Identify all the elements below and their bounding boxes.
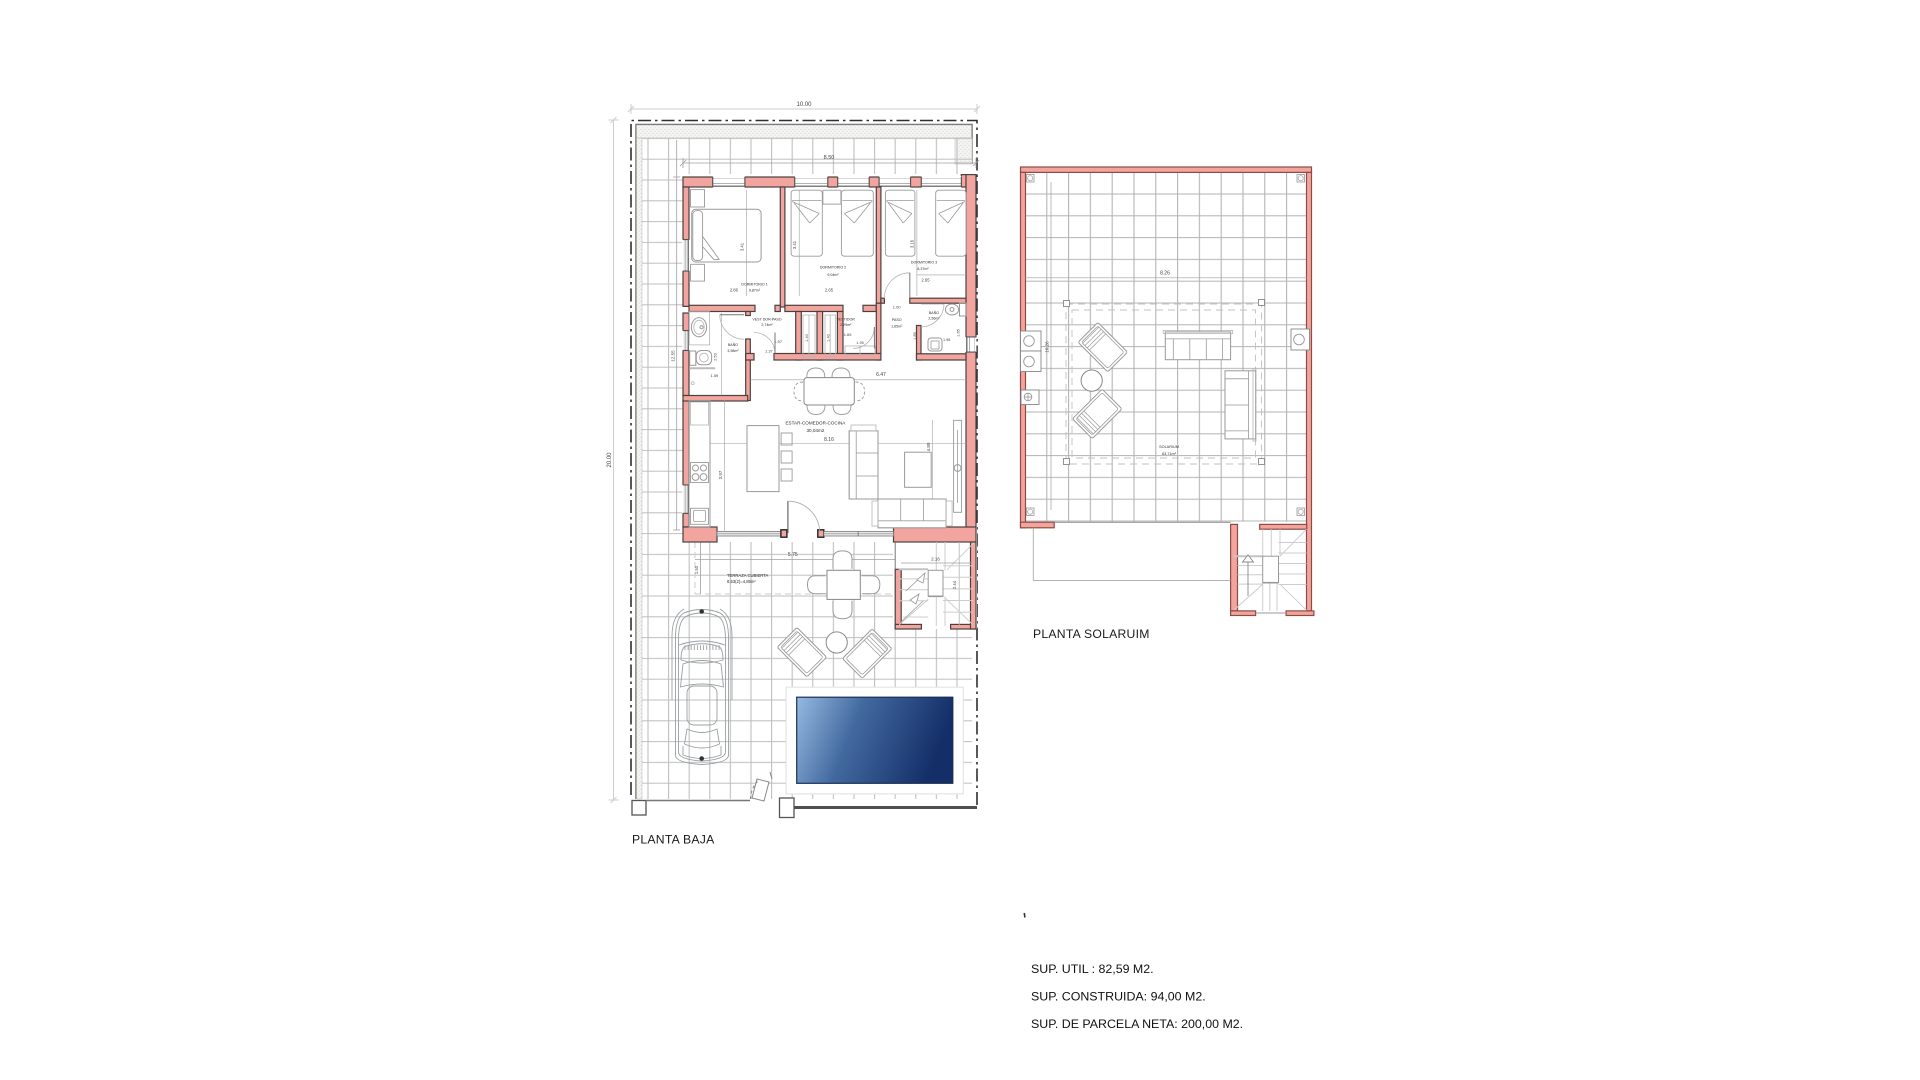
svg-text:2.44: 2.44 — [952, 580, 957, 589]
svg-text:1.37: 1.37 — [765, 349, 774, 354]
svg-text:TERRAZA CUBIERTA: TERRAZA CUBIERTA — [727, 573, 768, 578]
svg-text:2.50: 2.50 — [713, 352, 718, 361]
svg-text:BAÑO: BAÑO — [728, 342, 738, 347]
svg-text:PASO: PASO — [892, 318, 902, 322]
svg-text:1.40: 1.40 — [827, 334, 831, 341]
svg-text:DORMITORIO 1: DORMITORIO 1 — [741, 283, 767, 287]
svg-text:2.65: 2.65 — [825, 288, 834, 293]
svg-text:30,04m2: 30,04m2 — [806, 428, 824, 433]
svg-text:8,37m²: 8,37m² — [917, 267, 929, 271]
svg-text:SUP. DE PARCELA NETA: 200,00 M: SUP. DE PARCELA NETA: 200,00 M2. — [1031, 1017, 1243, 1031]
svg-text:VEST DOR-PASO: VEST DOR-PASO — [752, 318, 781, 322]
svg-text:1.00: 1.00 — [893, 305, 902, 310]
svg-text:8.50: 8.50 — [824, 155, 835, 161]
svg-text:SUP. UTIL : 82,59 M2.: SUP. UTIL : 82,59 M2. — [1031, 962, 1154, 976]
svg-text:10.26: 10.26 — [1045, 341, 1050, 353]
svg-text:1.98: 1.98 — [943, 338, 950, 342]
svg-text:8.26: 8.26 — [1160, 271, 1170, 277]
svg-text:1.40: 1.40 — [805, 334, 809, 341]
svg-text:3.97: 3.97 — [718, 470, 723, 479]
svg-text:4.80: 4.80 — [926, 442, 931, 451]
svg-text:PLANTA BAJA: PLANTA BAJA — [632, 833, 715, 847]
svg-text:63,71m²: 63,71m² — [1162, 452, 1177, 456]
svg-text:3.41: 3.41 — [792, 240, 797, 249]
svg-text:PLANTA SOLARUIM: PLANTA SOLARUIM — [1033, 627, 1150, 641]
svg-text:5.75: 5.75 — [788, 552, 798, 558]
svg-text:20.00: 20.00 — [607, 452, 613, 468]
svg-text:2,56m²: 2,56m² — [928, 317, 940, 321]
svg-text:1.85: 1.85 — [913, 332, 917, 339]
svg-text:2.16: 2.16 — [931, 557, 940, 562]
svg-text:DORMITORIO 2: DORMITORIO 2 — [820, 266, 846, 270]
svg-text:BAÑO: BAÑO — [929, 310, 939, 315]
svg-text:12.55: 12.55 — [671, 350, 676, 362]
svg-text:2,29m²: 2,29m² — [840, 323, 852, 327]
svg-text:1,65m²: 1,65m² — [891, 325, 903, 329]
svg-text:9,04m²: 9,04m² — [827, 273, 839, 277]
svg-text:2,74m²: 2,74m² — [761, 323, 773, 327]
svg-text:1.50: 1.50 — [694, 565, 699, 574]
svg-text:3.16: 3.16 — [910, 239, 915, 248]
svg-text:3,98m²: 3,98m² — [727, 349, 739, 353]
svg-text:10.00: 10.00 — [796, 102, 812, 108]
svg-text:SUP. CONSTRUIDA: 94,00 M2.: SUP. CONSTRUIDA: 94,00 M2. — [1031, 990, 1206, 1004]
svg-text:8.16: 8.16 — [824, 437, 834, 443]
svg-text:2.65: 2.65 — [921, 277, 930, 282]
svg-text:VESTIDOR: VESTIDOR — [837, 318, 856, 322]
svg-text:1.65: 1.65 — [844, 332, 853, 337]
svg-text:2.86: 2.86 — [730, 288, 739, 293]
svg-text:1.59: 1.59 — [711, 373, 720, 378]
svg-text:SOLARIUM: SOLARIUM — [1159, 445, 1179, 449]
svg-text:3.41: 3.41 — [740, 242, 745, 251]
svg-text:DORMITORIO 3: DORMITORIO 3 — [911, 261, 937, 265]
svg-text:9,87m²: 9,87m² — [749, 289, 761, 293]
svg-text:6.47: 6.47 — [876, 372, 886, 378]
svg-text:ESTAR-COMEDOR-COCINA: ESTAR-COMEDOR-COCINA — [785, 421, 846, 426]
svg-text:1.95: 1.95 — [856, 341, 863, 345]
svg-text:1.65: 1.65 — [957, 329, 961, 336]
svg-text:8,53(2)=4,85m²: 8,53(2)=4,85m² — [727, 579, 756, 584]
